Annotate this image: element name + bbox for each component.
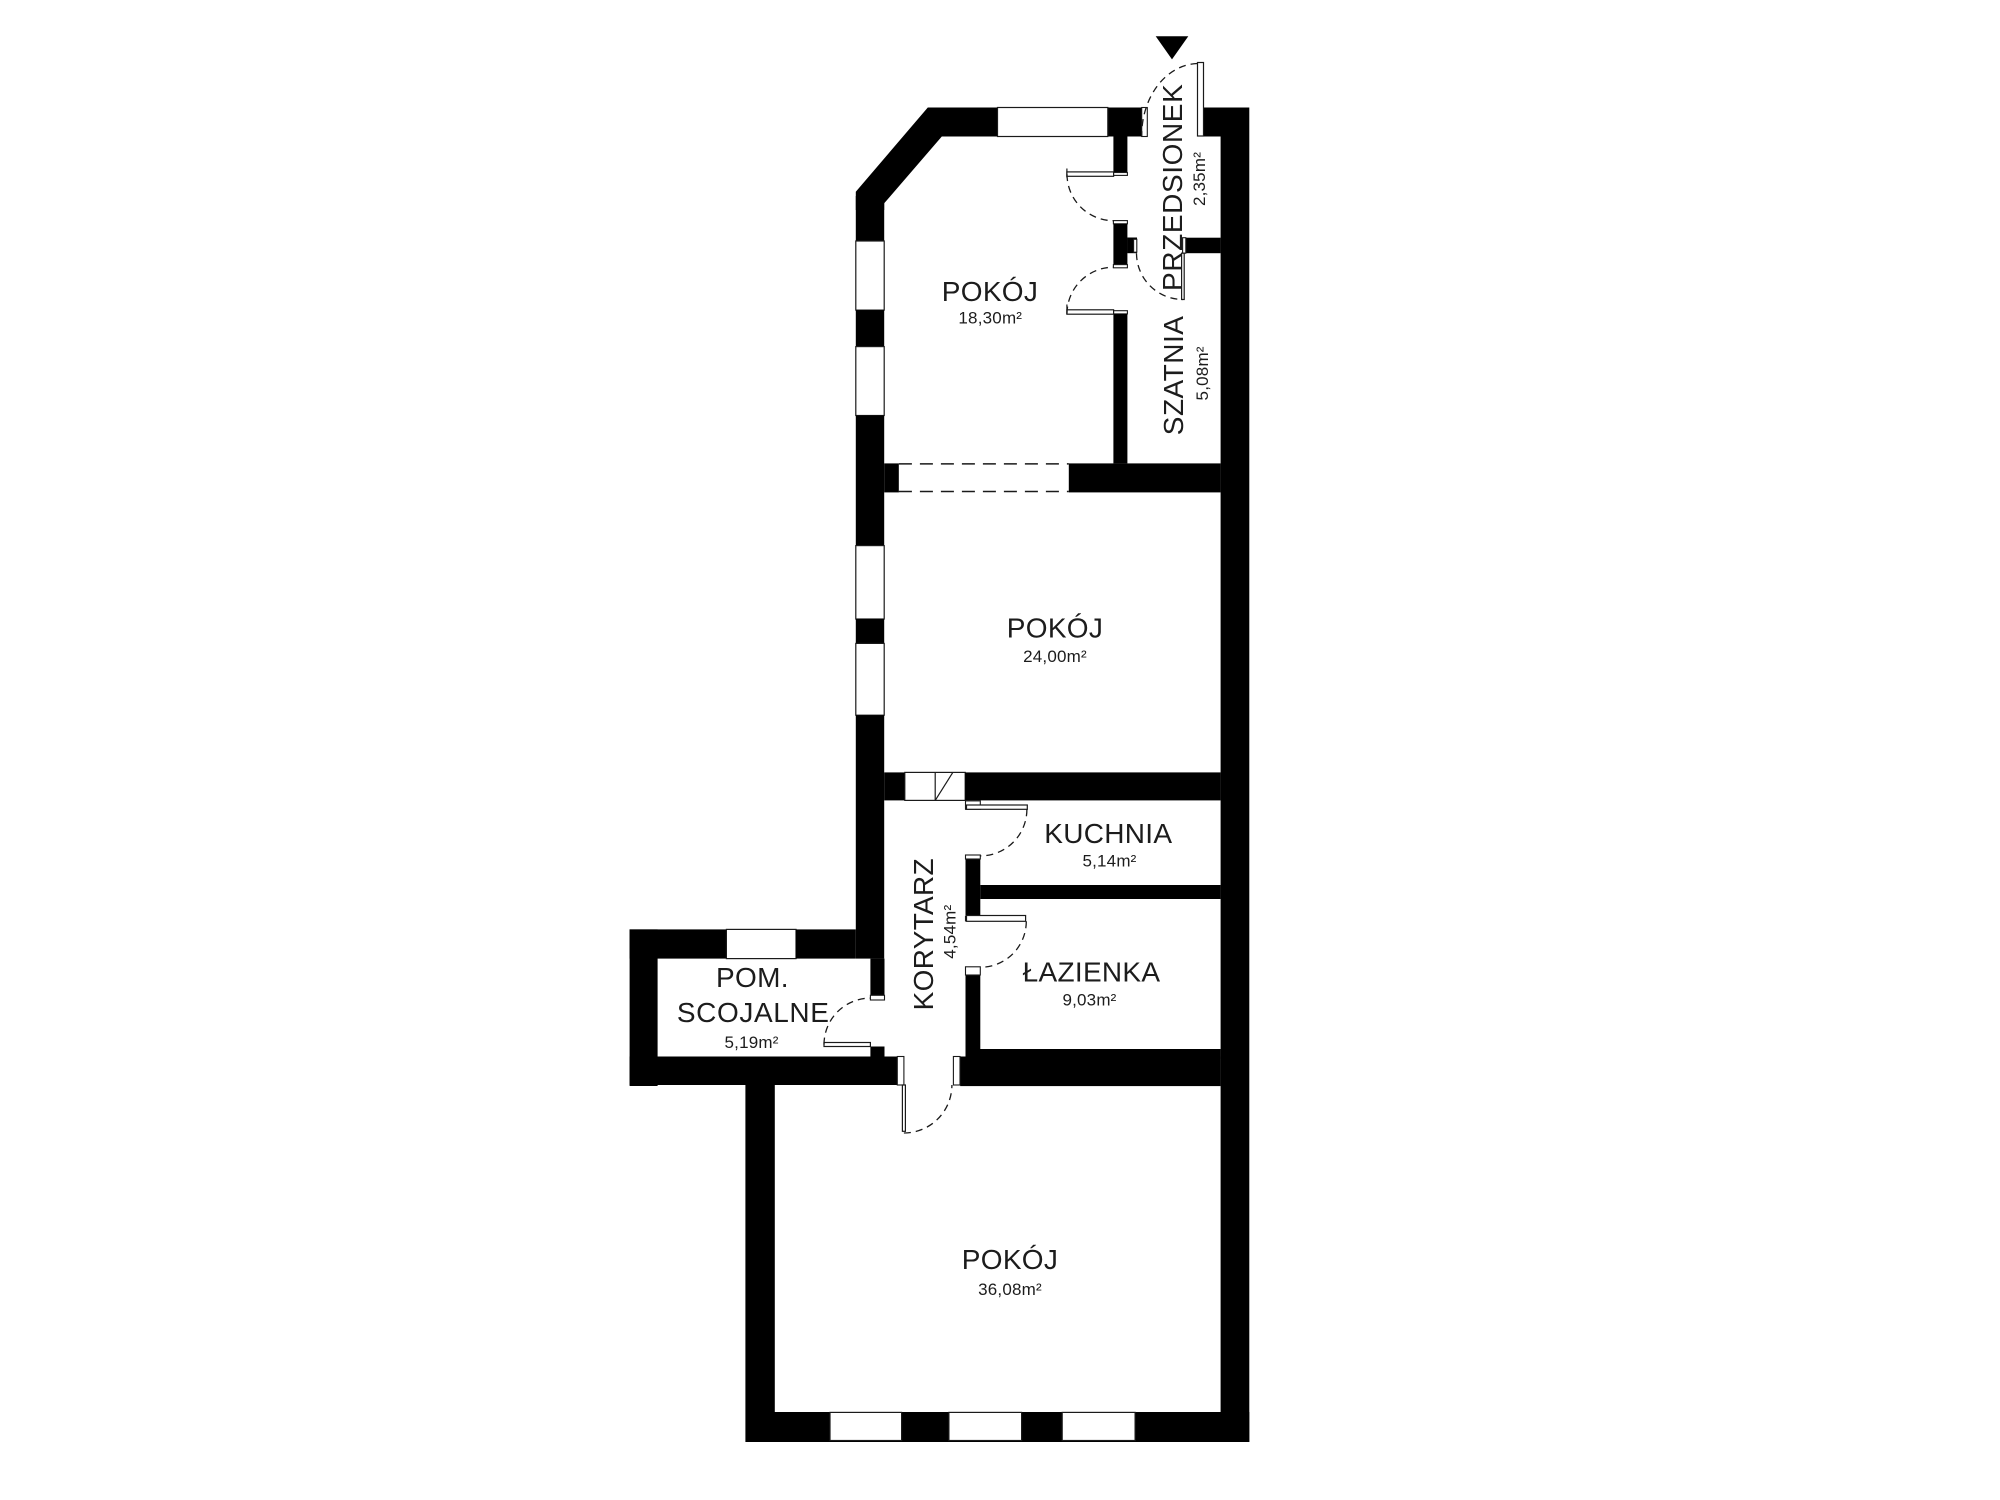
svg-text:2,35m²: 2,35m² (1190, 152, 1209, 206)
svg-text:KORYTARZ: KORYTARZ (908, 858, 939, 1010)
svg-text:PRZEDSIONEK: PRZEDSIONEK (1157, 84, 1188, 291)
svg-text:5,19m²: 5,19m² (725, 1033, 779, 1052)
svg-text:POKÓJ: POKÓJ (942, 276, 1038, 307)
svg-text:24,00m²: 24,00m² (1023, 647, 1087, 666)
svg-text:18,30m²: 18,30m² (958, 308, 1022, 327)
svg-text:5,08m²: 5,08m² (1193, 346, 1212, 400)
svg-text:SZATNIA: SZATNIA (1158, 316, 1189, 436)
svg-text:5,14m²: 5,14m² (1082, 852, 1136, 871)
svg-text:POKÓJ: POKÓJ (962, 1244, 1058, 1275)
svg-text:ŁAZIENKA: ŁAZIENKA (1023, 957, 1161, 988)
svg-text:SCOJALNE: SCOJALNE (677, 997, 830, 1028)
svg-text:9,03m²: 9,03m² (1062, 991, 1116, 1010)
svg-text:POKÓJ: POKÓJ (1007, 613, 1103, 644)
svg-text:36,08m²: 36,08m² (978, 1280, 1042, 1299)
svg-text:POM.: POM. (716, 962, 789, 993)
svg-text:4,54m²: 4,54m² (941, 905, 960, 959)
svg-text:KUCHNIA: KUCHNIA (1044, 818, 1172, 849)
